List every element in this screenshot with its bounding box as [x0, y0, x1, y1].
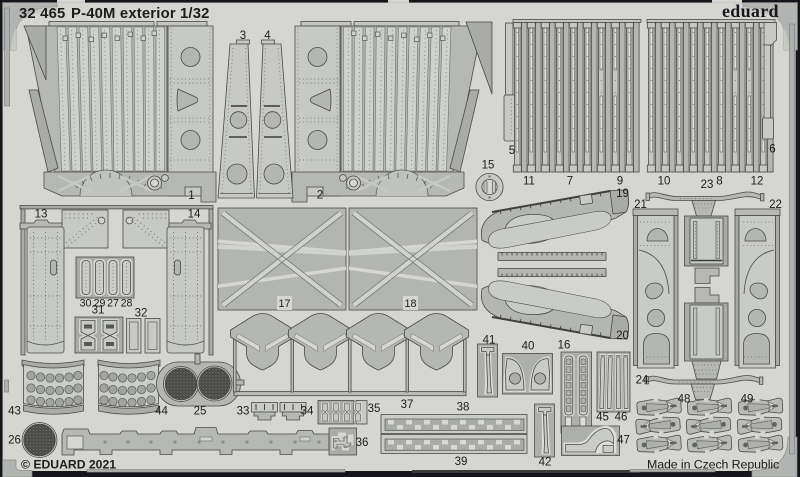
svg-text:7: 7	[567, 176, 573, 188]
svg-text:39: 39	[455, 456, 468, 468]
svg-text:16: 16	[558, 340, 571, 352]
svg-text:9: 9	[617, 176, 623, 188]
svg-text:42: 42	[539, 457, 552, 469]
svg-text:14: 14	[188, 209, 201, 221]
svg-text:36: 36	[356, 437, 369, 449]
svg-text:1/32: 1/32	[180, 6, 210, 22]
svg-text:37: 37	[401, 399, 414, 411]
svg-text:27: 27	[107, 298, 119, 310]
svg-text:8: 8	[716, 176, 722, 188]
svg-text:38: 38	[457, 402, 470, 414]
svg-text:1: 1	[188, 190, 194, 202]
svg-text:49: 49	[741, 394, 754, 406]
svg-text:44: 44	[155, 406, 168, 418]
svg-text:33: 33	[237, 406, 250, 418]
svg-text:2: 2	[317, 190, 323, 202]
svg-text:13: 13	[35, 209, 48, 221]
svg-text:5: 5	[509, 145, 515, 157]
svg-text:12: 12	[751, 176, 764, 188]
svg-text:21: 21	[634, 199, 647, 211]
svg-text:23: 23	[701, 179, 714, 191]
svg-text:11: 11	[523, 176, 535, 188]
svg-text:32: 32	[135, 308, 148, 320]
svg-text:3: 3	[240, 30, 246, 42]
svg-text:18: 18	[404, 298, 416, 310]
svg-text:6: 6	[769, 144, 775, 156]
svg-text:46: 46	[615, 412, 628, 424]
svg-text:Made in Czech Republic: Made in Czech Republic	[647, 458, 779, 472]
svg-text:10: 10	[658, 176, 671, 188]
svg-text:40: 40	[522, 341, 535, 353]
svg-text:30: 30	[80, 298, 92, 310]
svg-text:20: 20	[616, 330, 629, 342]
svg-text:17: 17	[278, 298, 290, 310]
svg-text:26: 26	[8, 435, 21, 447]
svg-text:32 465: 32 465	[19, 6, 65, 22]
svg-text:34: 34	[301, 406, 314, 418]
svg-text:47: 47	[617, 435, 630, 447]
svg-text:15: 15	[482, 160, 495, 172]
svg-text:22: 22	[769, 199, 782, 211]
svg-text:25: 25	[194, 406, 207, 418]
svg-text:24: 24	[636, 375, 649, 387]
svg-text:19: 19	[616, 188, 629, 200]
svg-text:41: 41	[483, 335, 496, 347]
svg-text:31: 31	[92, 305, 105, 317]
svg-text:45: 45	[596, 412, 609, 424]
svg-text:© EDUARD 2021: © EDUARD 2021	[21, 458, 116, 472]
svg-text:4: 4	[264, 30, 271, 42]
svg-text:43: 43	[8, 406, 21, 418]
svg-text:P-40M exterior: P-40M exterior	[71, 6, 176, 22]
svg-text:35: 35	[368, 403, 381, 415]
svg-text:48: 48	[678, 394, 691, 406]
svg-text:eduard: eduard	[722, 1, 779, 21]
svg-text:28: 28	[121, 298, 133, 310]
